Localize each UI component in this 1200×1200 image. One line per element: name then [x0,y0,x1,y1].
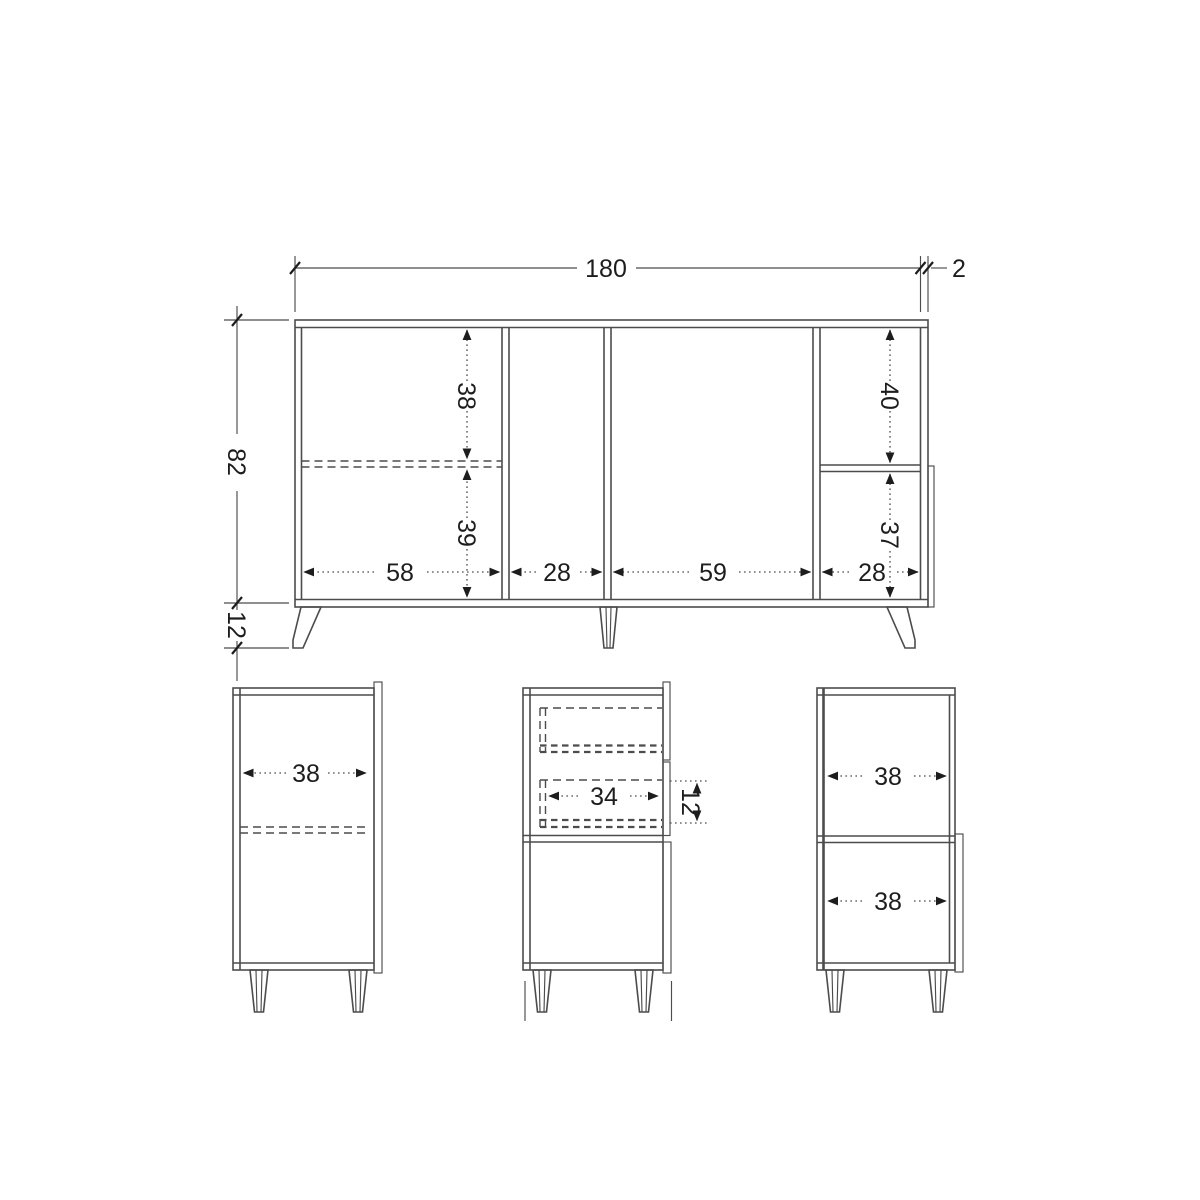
dim-drawer-height: 12 [670,781,709,823]
dim-label-top-panel-thickness: 2 [952,255,966,283]
dim-body-height: 82 12 [222,306,289,681]
dim-label-lower-depth: 38 [874,888,902,916]
left-leg [293,607,321,648]
front-elevation-view: 180 2 82 12 38 [222,255,966,681]
section-view-middle: 34 12 [523,682,709,1021]
right-door-edge [928,466,934,607]
front-view-legs [293,607,915,648]
drawing-canvas: 180 2 82 12 38 [0,0,1200,1200]
dim-label-inner-depth: 38 [292,760,320,788]
dim-drawer-width: 34 [549,783,658,811]
door-front-edge [955,834,963,972]
dim-label-compartment-1: 58 [386,559,414,587]
door-front-edge [374,682,382,973]
dim-label-lower-left: 39 [452,519,480,547]
section-view-middle-legs [525,970,672,1021]
right-leg [887,607,915,648]
upper-drawer-front-edge [663,682,670,760]
hidden-drawer-upper [540,708,662,752]
dim-label-overall-width: 180 [585,255,627,283]
dim-label-drawer-width: 34 [590,783,618,811]
dim-label-upper-right: 40 [875,382,903,410]
dim-lower-depth: 38 [828,888,946,916]
dim-label-drawer-height: 12 [676,788,704,816]
dim-label-upper-depth: 38 [874,763,902,791]
dim-label-compartment-2: 28 [543,559,571,587]
dim-label-leg-height: 12 [222,611,250,639]
dim-overall-width: 180 [290,255,926,312]
dim-left-inner-heights: 38 39 [452,330,480,597]
side-view-right: 38 38 [817,688,963,1012]
dim-label-compartment-4: 28 [858,559,886,587]
lower-drawer-front-edge [663,762,670,836]
side-view-left-legs [250,970,367,1012]
dim-label-upper-left: 38 [452,382,480,410]
dim-inner-depth: 38 [244,760,367,788]
dim-label-lower-right: 37 [875,521,903,549]
technical-drawing: 180 2 82 12 38 [0,0,1200,1200]
dim-top-panel-thickness: 2 [923,255,966,312]
door-front-edge [663,842,671,973]
side-view-left: 38 [233,682,382,1012]
dim-upper-depth: 38 [828,763,946,791]
dim-right-inner-heights: 40 37 [875,330,903,597]
dim-label-body-height: 82 [222,448,250,476]
dim-label-compartment-3: 59 [699,559,727,587]
center-leg [600,607,617,648]
side-view-right-legs [826,970,947,1012]
